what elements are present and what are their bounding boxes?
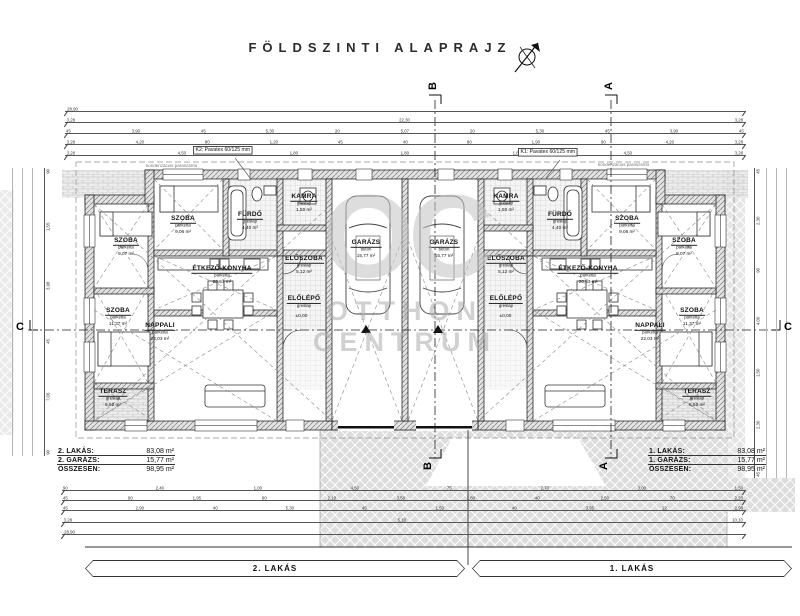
dim-value: 4,00 <box>757 316 761 324</box>
dim-value: 3,28 <box>67 151 75 155</box>
dim-value: 5,30 <box>266 129 274 133</box>
dim-value: 40 <box>535 496 540 500</box>
section-marker-b-bottom: B <box>422 462 434 470</box>
section-marker-c-left: C <box>16 321 24 333</box>
table-row: ÖSSZESEN:98,95 m² <box>648 465 766 473</box>
dim-value: 40 <box>512 506 517 510</box>
section-marker-b-top: B <box>427 82 439 90</box>
apartment-bar-right-label: 1. LAKÁS <box>472 560 792 577</box>
floorplan-canvas: FÖLDSZINTI ALAPRAJZ OC OTTHON CENTRUM SZ… <box>0 0 800 616</box>
dim-value: 4,20 <box>136 140 144 144</box>
dim-value: 1,50 <box>735 486 743 490</box>
dim-value: 45 <box>201 129 206 133</box>
dim-value: 45 <box>739 129 744 133</box>
dim-row-top-3: 453,90455,30205,07205,30453,9045 <box>65 124 745 134</box>
dim-col-left: 901,553,98457,0690 <box>44 168 55 456</box>
dim-value: 2,20 <box>735 496 743 500</box>
elevation-zero: ±0,00 <box>499 314 511 319</box>
section-marker-a-bottom: A <box>598 462 610 470</box>
dim-value: 22,30 <box>400 118 411 122</box>
dim-row-top-4: 3,284,20801,204540801,90904,203,28 <box>65 135 745 145</box>
dim-value: 2,90 <box>136 506 144 510</box>
section-marker-a-top: A <box>603 82 615 90</box>
dim-row-bottom-1: 902,401,004,50752,703,001,50 <box>62 481 745 491</box>
dim-value: 90 <box>262 496 267 500</box>
dim-value: 5,30 <box>535 129 543 133</box>
table-row: 1. GARÁZS:15,77 m² <box>648 456 766 465</box>
table-row: ÖSSZESEN:98,95 m² <box>57 465 175 473</box>
dim-value: 40 <box>213 506 218 510</box>
dim-line <box>766 168 767 478</box>
dim-value: 4,50 <box>178 151 186 155</box>
dim-value: 20 <box>470 129 475 133</box>
dim-value: 3,28 <box>735 140 743 144</box>
floorplan-drawing <box>0 0 800 616</box>
dim-value: 5,30 <box>286 506 294 510</box>
dim-value: 45 <box>605 129 610 133</box>
dim-value: 45 <box>47 339 51 344</box>
dim-value: 90 <box>757 268 761 273</box>
dim-line <box>12 168 13 456</box>
dim-value: 3,90 <box>131 129 139 133</box>
wall-callout-k2-note: kondenzációs páraszárító <box>146 164 197 169</box>
dim-value: 3,28 <box>67 118 75 122</box>
dim-value: 75 <box>447 486 452 490</box>
dim-value: 80 <box>205 140 210 144</box>
dim-value: 2,10 <box>327 496 335 500</box>
dim-value: 2,30 <box>757 217 761 225</box>
dim-value: 90 <box>47 450 51 455</box>
dim-value: 1,00 <box>253 486 261 490</box>
dim-value: 3,98 <box>47 281 51 289</box>
dim-value: 2,40 <box>156 486 164 490</box>
dim-row-bottom-5: 28,90 <box>62 525 745 535</box>
dim-value: 45 <box>338 140 343 144</box>
apartment-bar-left-label: 2. LAKÁS <box>85 560 465 577</box>
elevation-zero: ±0,00 <box>295 314 307 319</box>
dim-value: 3,28 <box>735 151 743 155</box>
dim-row-top-5: 3,284,501,801,801,804,503,28 <box>65 146 745 156</box>
dim-value: 12 <box>662 506 667 510</box>
dim-value: 45 <box>63 506 68 510</box>
table-row: 2. GARÁZS:15,77 m² <box>57 456 175 465</box>
area-table-left: 2. LAKÁS:83,08 m² 2. GARÁZS:15,77 m² ÖSS… <box>57 447 175 473</box>
dim-value: 3,50 <box>397 496 405 500</box>
dim-value: 4,50 <box>351 486 359 490</box>
dim-value: 1,50 <box>757 369 761 377</box>
dim-value: 1,50 <box>435 506 443 510</box>
dim-value: 5,10 <box>398 518 406 522</box>
dim-value: 90 <box>128 496 133 500</box>
dim-value: 5,07 <box>401 129 409 133</box>
dim-value: 20 <box>335 129 340 133</box>
wall-callout-k2: K2: Pavatex 60/125 mm <box>193 146 253 155</box>
table-row: 1. LAKÁS:83,08 m² <box>648 447 766 456</box>
dim-value: 45 <box>757 169 761 174</box>
dim-value: 90 <box>63 486 68 490</box>
dim-line <box>32 168 33 456</box>
dim-value: 3,28 <box>735 118 743 122</box>
dim-value: 1,95 <box>193 496 201 500</box>
dim-value: 7,06 <box>47 393 51 401</box>
dim-row-bottom-3: 452,90405,30451,50403,95122,98 <box>62 501 745 511</box>
dim-value: 4,20 <box>666 140 674 144</box>
wall-callout-k1-note: kondenzációs páraszárító <box>598 163 649 168</box>
dim-value: 45 <box>362 506 367 510</box>
apartment-bar-left: 2. LAKÁS <box>85 560 465 577</box>
area-table-right: 1. LAKÁS:83,08 m² 1. GARÁZS:15,77 m² ÖSS… <box>648 447 766 473</box>
dim-value: 1,90 <box>532 140 540 144</box>
dim-value: 2,70 <box>540 486 548 490</box>
dim-line <box>776 168 777 478</box>
dim-value: 90 <box>601 140 606 144</box>
dim-value: 1,80 <box>401 151 409 155</box>
dim-value: 3,28 <box>64 518 72 522</box>
dim-value: 80 <box>467 140 472 144</box>
dim-value: 3,95 <box>585 506 593 510</box>
dim-value: 28,90 <box>64 530 75 534</box>
dim-line <box>22 168 23 456</box>
dim-value: 2,98 <box>735 506 743 510</box>
dim-value: 3,28 <box>67 140 75 144</box>
dim-value: 3,00 <box>638 486 646 490</box>
dim-value: 1,20 <box>270 140 278 144</box>
dim-value: 2,50 <box>601 496 609 500</box>
dim-value: 2,30 <box>757 421 761 429</box>
dim-value: 10,10 <box>732 518 743 522</box>
dim-value: 40 <box>403 140 408 144</box>
dim-value: 3,90 <box>670 129 678 133</box>
dim-value: 70 <box>670 496 675 500</box>
dim-col-right: 452,30904,001,502,3045 <box>754 168 765 478</box>
page-title: FÖLDSZINTI ALAPRAJZ <box>160 40 600 55</box>
dim-row-bottom-4: 3,285,1010,10 <box>62 513 745 523</box>
apartment-bar-right: 1. LAKÁS <box>472 560 792 577</box>
table-row: 2. LAKÁS:83,08 m² <box>57 447 175 456</box>
dim-value: 1,80 <box>466 496 474 500</box>
dim-value: 1,80 <box>289 151 297 155</box>
wall-callout-k1: K1: Pavatex 60/125 mm <box>518 148 578 157</box>
dim-value: 1,55 <box>47 223 51 231</box>
dim-value: 4,50 <box>624 151 632 155</box>
dim-row-top-1: 28,90 <box>65 102 745 112</box>
dim-row-top-2: 3,2822,303,28 <box>65 113 745 123</box>
dim-value: 90 <box>47 169 51 174</box>
dim-value: 45 <box>63 496 68 500</box>
dim-row-bottom-2: 45901,95902,103,501,80402,50702,20 <box>62 491 745 501</box>
dim-value: 45 <box>66 129 71 133</box>
section-marker-c-right: C <box>784 321 792 333</box>
dim-value: 28,90 <box>67 107 78 111</box>
